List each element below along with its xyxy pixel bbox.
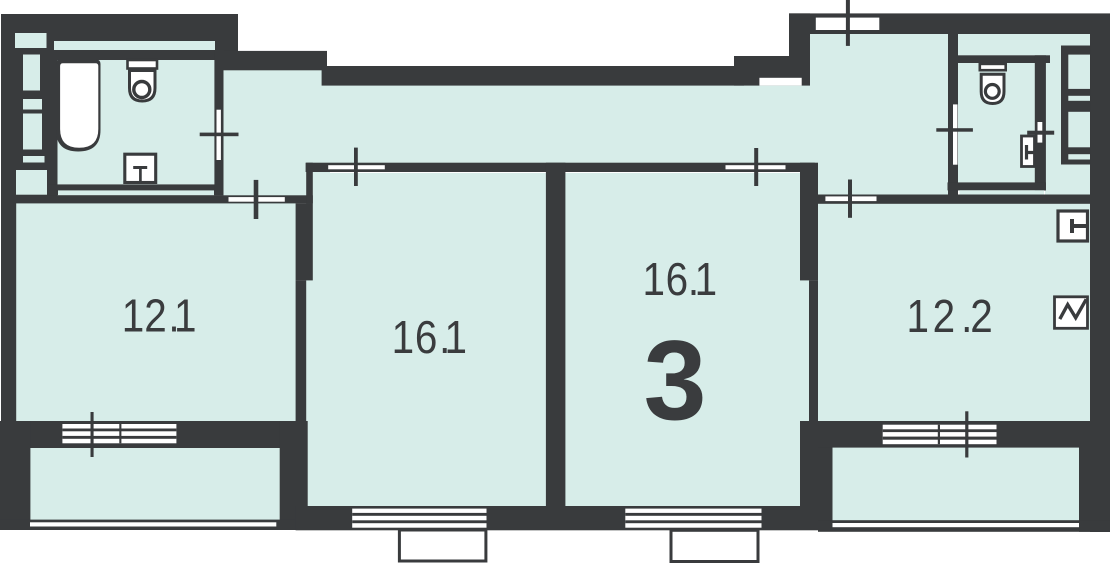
svg-text:1: 1 [392, 313, 415, 364]
svg-text:1: 1 [695, 255, 718, 306]
svg-text:1: 1 [174, 291, 197, 342]
svg-text:6: 6 [666, 255, 689, 306]
svg-text:1: 1 [122, 291, 145, 342]
svg-text:1: 1 [642, 255, 665, 306]
svg-text:1: 1 [445, 313, 468, 364]
svg-text:1: 1 [906, 292, 929, 343]
svg-text:6: 6 [415, 313, 438, 364]
svg-text:2: 2 [970, 292, 993, 343]
svg-text:2: 2 [933, 292, 956, 343]
svg-text:2: 2 [144, 291, 167, 342]
svg-text:3: 3 [644, 317, 707, 443]
